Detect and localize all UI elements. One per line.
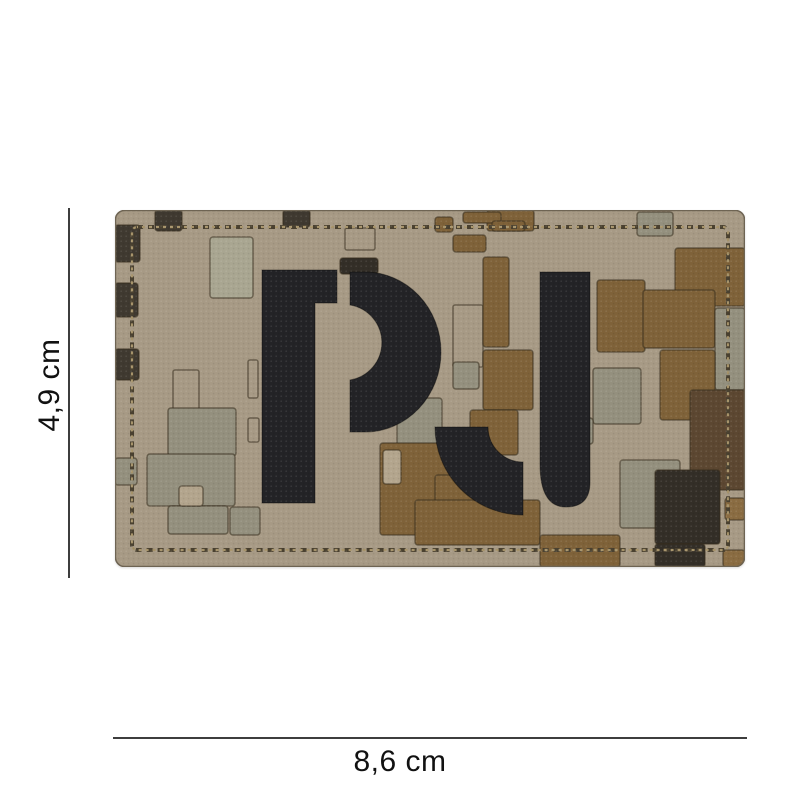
camo-patch-image: [115, 210, 745, 567]
width-dimension-label: 8,6 cm: [330, 744, 470, 780]
product-photo: 4,9 cm 8,6 cm: [0, 0, 800, 800]
width-dimension-line: [113, 737, 747, 739]
fabric-texture-overlay: [115, 210, 745, 567]
height-dimension-line: [68, 208, 70, 578]
patch-svg: [115, 210, 745, 567]
height-dimension-label: 4,9 cm: [32, 315, 68, 455]
